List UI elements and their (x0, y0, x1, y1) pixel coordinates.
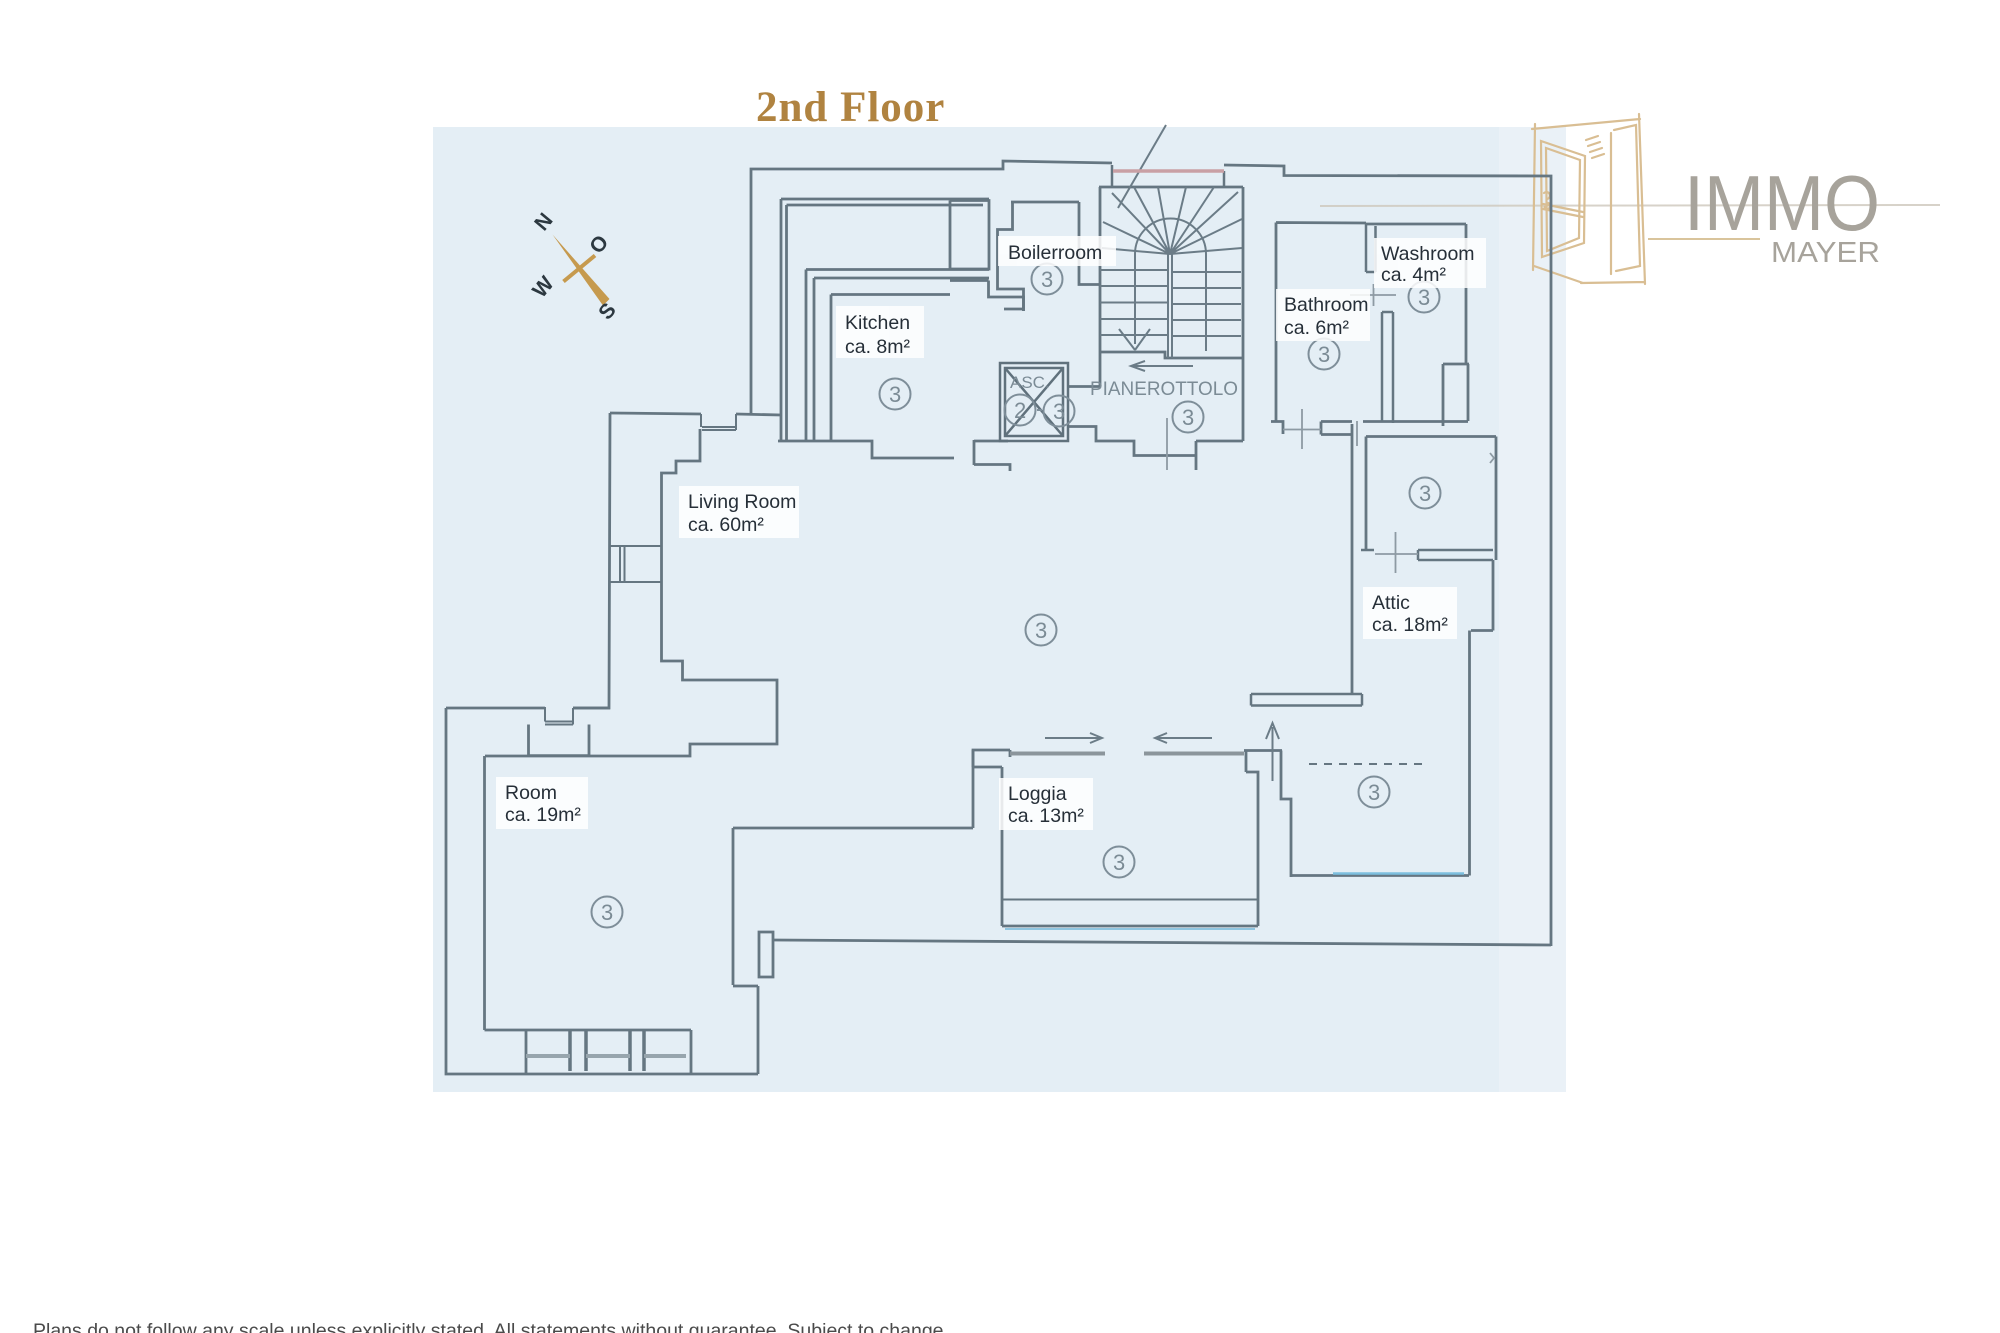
svg-text:Kitchen: Kitchen (845, 312, 910, 334)
svg-text:3: 3 (1419, 481, 1431, 506)
svg-text:Room: Room (505, 782, 557, 804)
svg-text:Living Room: Living Room (688, 491, 796, 513)
svg-text:ca. 6m²: ca. 6m² (1284, 317, 1350, 339)
svg-text:Washroom: Washroom (1381, 243, 1475, 265)
svg-text:3: 3 (1418, 285, 1430, 310)
svg-text:3: 3 (601, 900, 613, 925)
svg-text:3: 3 (1035, 618, 1047, 643)
svg-text:3: 3 (1318, 342, 1330, 367)
svg-text:3: 3 (1041, 267, 1053, 292)
svg-text:ca. 4m²: ca. 4m² (1381, 264, 1447, 286)
svg-text:2nd Floor: 2nd Floor (756, 84, 945, 131)
svg-text:ca. 13m²: ca. 13m² (1008, 805, 1084, 827)
svg-text:Boilerroom: Boilerroom (1008, 242, 1102, 264)
svg-text:3: 3 (1368, 780, 1380, 805)
svg-text:ca. 18m²: ca. 18m² (1372, 614, 1448, 636)
svg-text:ASC.: ASC. (1010, 373, 1050, 392)
svg-text:Attic: Attic (1372, 592, 1410, 614)
svg-text:3: 3 (1113, 850, 1125, 875)
svg-text:MAYER: MAYER (1771, 237, 1880, 269)
svg-text:3: 3 (889, 382, 901, 407)
svg-text:PIANEROTTOLO: PIANEROTTOLO (1090, 379, 1238, 400)
svg-text:ca. 19m²: ca. 19m² (505, 804, 581, 826)
svg-text:3: 3 (1053, 399, 1065, 424)
svg-text:Plans do not follow any scale: Plans do not follow any scale unless exp… (33, 1320, 949, 1333)
svg-text:ca. 8m²: ca. 8m² (845, 336, 911, 358)
svg-text:ca. 60m²: ca. 60m² (688, 514, 764, 536)
svg-text:2: 2 (1014, 398, 1026, 423)
svg-text:Loggia: Loggia (1008, 783, 1067, 805)
svg-text:3: 3 (1182, 405, 1194, 430)
svg-text:Bathroom: Bathroom (1284, 294, 1369, 316)
svg-text:IMMO: IMMO (1684, 159, 1880, 247)
